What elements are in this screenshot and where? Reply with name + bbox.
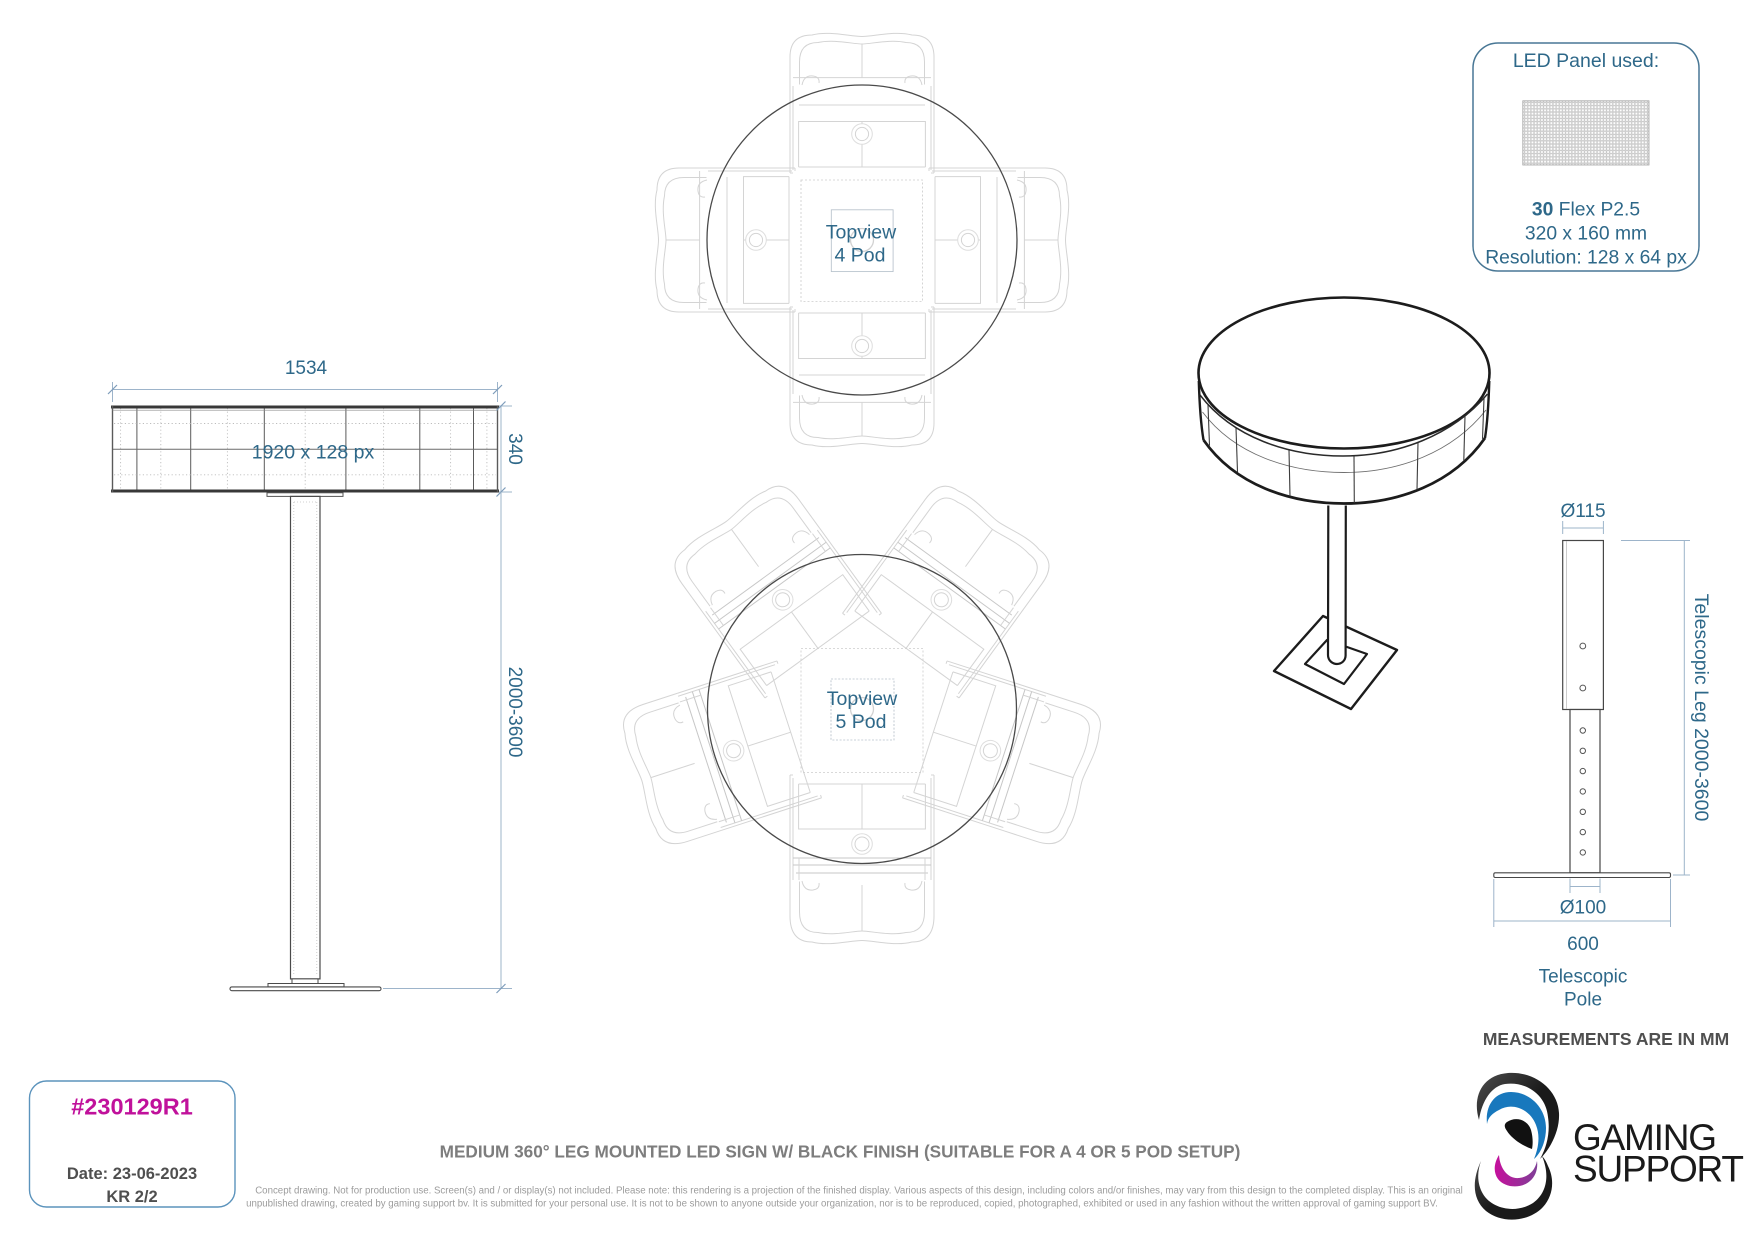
svg-text:5 Pod: 5 Pod <box>836 711 887 733</box>
svg-text:MEDIUM 360° LEG MOUNTED LED SI: MEDIUM 360° LEG MOUNTED LED SIGN W/ BLAC… <box>440 1142 1241 1162</box>
svg-text:Telescopic Leg 2000-3600: Telescopic Leg 2000-3600 <box>1690 594 1712 822</box>
svg-text:Ø100: Ø100 <box>1560 898 1606 919</box>
svg-text:600: 600 <box>1567 934 1599 955</box>
svg-text:2000-3600: 2000-3600 <box>504 667 525 758</box>
svg-text:340: 340 <box>504 433 525 465</box>
svg-text:MEASUREMENTS ARE IN MM: MEASUREMENTS ARE IN MM <box>1483 1029 1729 1049</box>
svg-text:Resolution: 128 x 64 px: Resolution: 128 x 64 px <box>1485 248 1687 269</box>
svg-text:Concept drawing. Not for produ: Concept drawing. Not for production use.… <box>255 1186 1463 1197</box>
svg-text:Date: 23-06-2023: Date: 23-06-2023 <box>67 1165 197 1183</box>
svg-text:Ø115: Ø115 <box>1560 501 1605 522</box>
svg-text:30 Flex P2.5: 30 Flex P2.5 <box>1532 200 1640 221</box>
svg-text:1920 x 128 px: 1920 x 128 px <box>252 442 375 464</box>
svg-text:Topview: Topview <box>826 222 897 244</box>
svg-text:Telescopic: Telescopic <box>1539 967 1628 988</box>
svg-text:unpublished drawing, created b: unpublished drawing, created by gaming s… <box>246 1199 1438 1210</box>
svg-text:LED Panel used:: LED Panel used: <box>1513 50 1659 72</box>
svg-text:Pole: Pole <box>1564 990 1602 1011</box>
svg-text:Topview: Topview <box>827 688 898 710</box>
svg-text:1534: 1534 <box>285 358 328 379</box>
svg-text:320 x 160 mm: 320 x 160 mm <box>1525 224 1647 245</box>
svg-text:KR 2/2: KR 2/2 <box>106 1188 157 1206</box>
svg-text:SUPPORT: SUPPORT <box>1573 1149 1743 1190</box>
svg-text:4 Pod: 4 Pod <box>835 245 886 267</box>
svg-text:#230129R1: #230129R1 <box>71 1094 193 1120</box>
